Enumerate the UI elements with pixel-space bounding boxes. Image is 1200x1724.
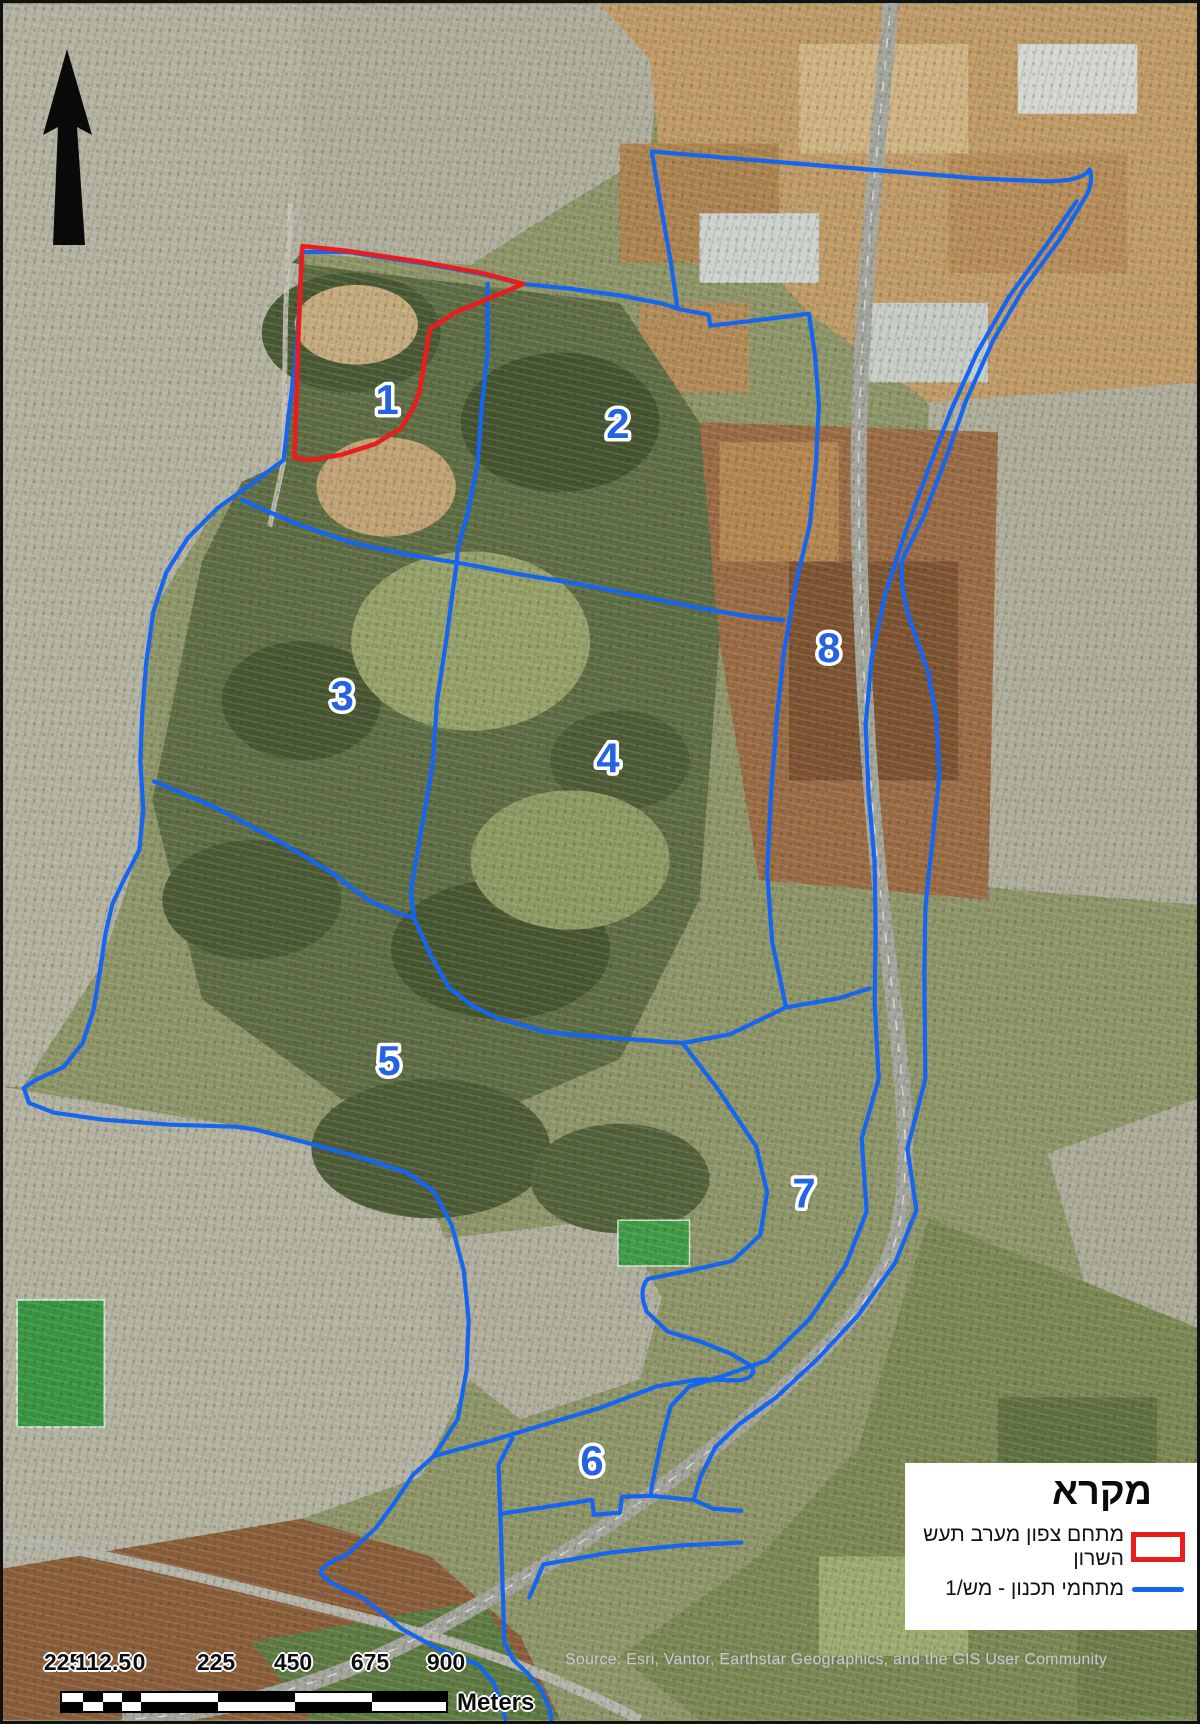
plan-outline-west-south: [24, 460, 469, 1456]
zone-label-2: 2: [606, 400, 629, 447]
scale-tick-label: 900: [427, 1649, 465, 1676]
legend-title: מקרא: [913, 1473, 1152, 1513]
zone-label-4: 4: [596, 734, 620, 781]
zone-label-6: 6: [580, 1437, 603, 1484]
blue-line-swatch-icon: [1130, 1587, 1186, 1592]
scale-tick-label: 450: [274, 1649, 312, 1676]
legend-item1-line2: השרון: [1073, 1547, 1124, 1570]
plan-map: 1 2 3 4 5 6 7 8 225 112.5 0 225 450 675 …: [0, 0, 1200, 1724]
scale-tick-label: 112.5: [75, 1649, 131, 1676]
zone-divider-northwest-vertical: [652, 152, 678, 309]
zone-label-8: 8: [817, 624, 840, 671]
zone7-west-and-south-boundary: [321, 1043, 767, 1720]
map-attribution: Source: Esri, Vantor, Earthstar Geograph…: [565, 1651, 1151, 1669]
legend-item2-label: מתחמי תכנון - מש/1: [945, 1577, 1124, 1601]
legend-item-plan-zones: מתחמי תכנון - מש/1: [913, 1577, 1186, 1601]
scale-unit-label: Meters: [457, 1689, 534, 1717]
zone5-north-divider: [154, 781, 682, 1043]
scale-tick-label: 675: [351, 1649, 389, 1676]
zone-divider-north: [284, 252, 809, 460]
scale-tick-label: 0: [133, 1649, 146, 1676]
north-arrow: [31, 41, 106, 256]
zone-label-3: 3: [331, 672, 354, 719]
legend-item-label: מתחם צפון מערב תעש השרון: [923, 1523, 1124, 1571]
scale-bar: 225 112.5 0 225 450 675 900 Meters: [41, 1649, 581, 1721]
zone-divider-horizontal: [242, 500, 783, 620]
scale-tick-label: 225: [197, 1649, 235, 1676]
legend-item1-line1: מתחם צפון מערב תעש: [923, 1523, 1124, 1546]
zone-label-7: 7: [792, 1169, 815, 1216]
red-rectangle-swatch-icon: [1130, 1532, 1186, 1562]
zone-label-5: 5: [377, 1037, 400, 1084]
scale-bar-graphic: [60, 1691, 448, 1713]
interchange-southeast-divider: [529, 1543, 741, 1598]
legend-item-highlight: מתחם צפון מערב תעש השרון: [913, 1523, 1186, 1571]
legend-panel: מקרא מתחם צפון מערב תעש השרון מתחמי תכנו…: [905, 1463, 1200, 1630]
interchange-east-divider: [501, 1496, 651, 1515]
zone-divider-ne-branch: [683, 1007, 786, 1043]
zone-label-1: 1: [375, 376, 398, 423]
